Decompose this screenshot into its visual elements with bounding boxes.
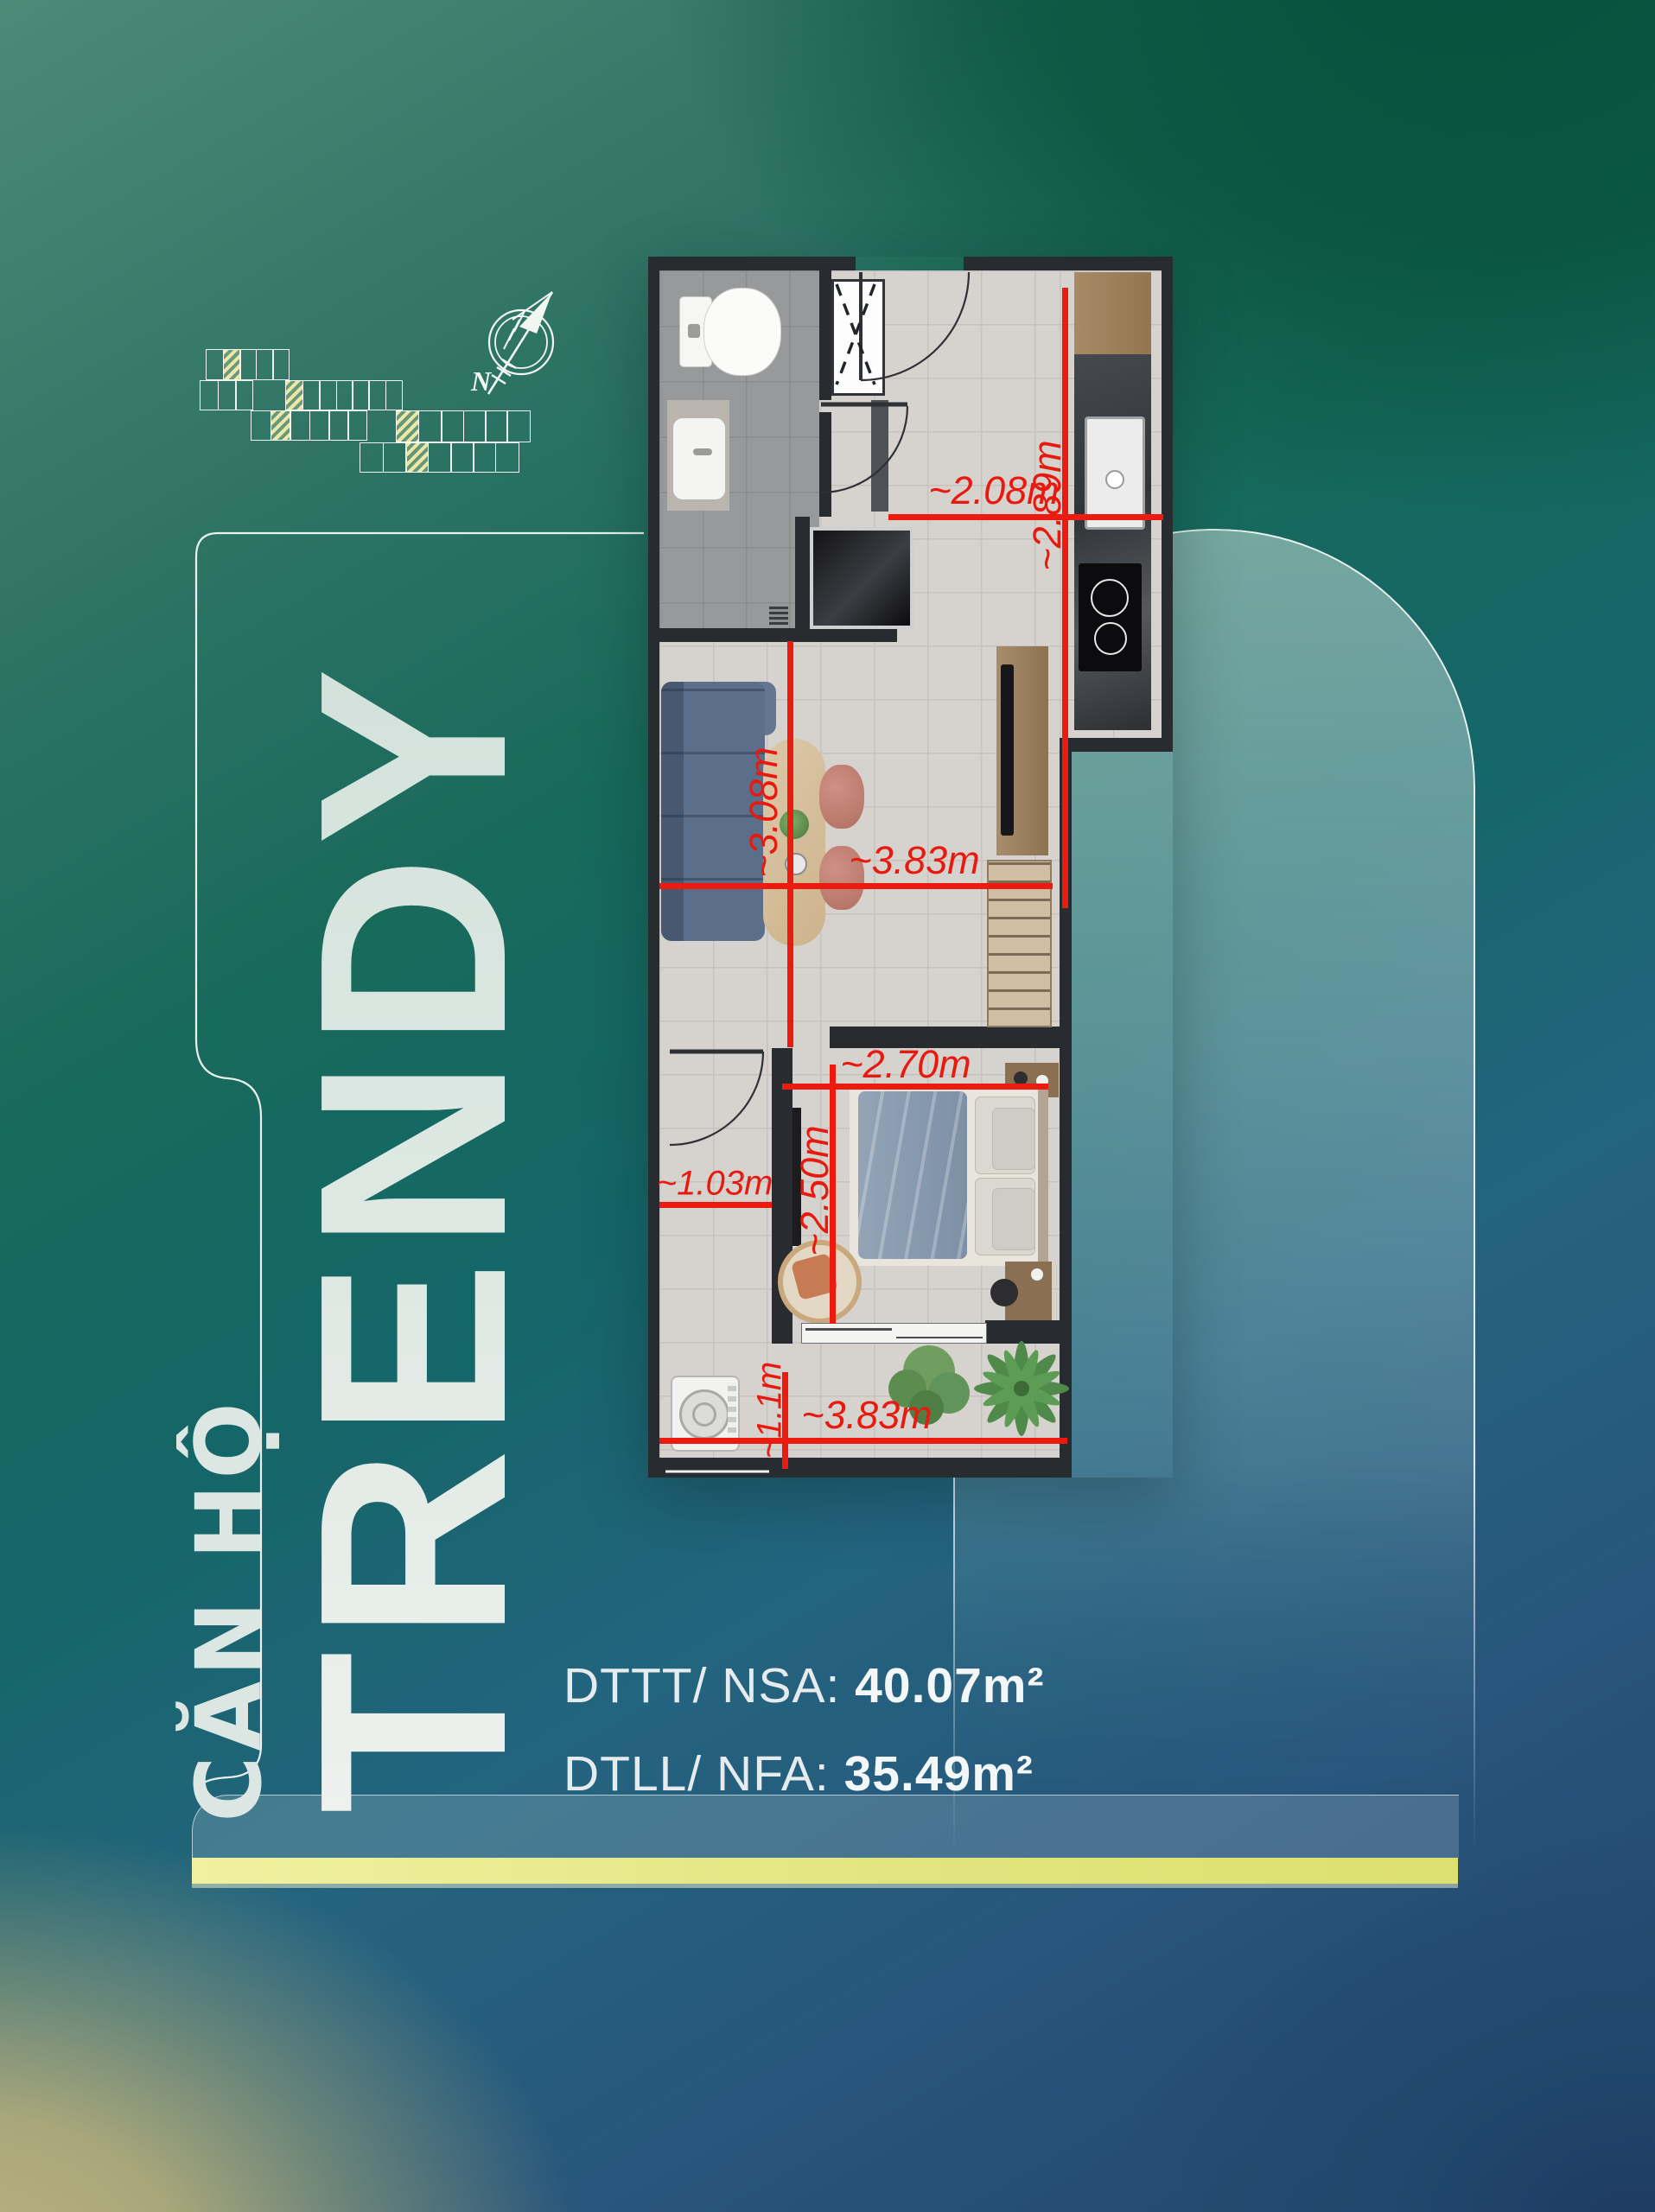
key-plan-unit	[235, 380, 253, 410]
dim-label-entry-width: ~2.08m	[928, 468, 1059, 513]
key-plan-unit-highlighted	[223, 349, 241, 380]
key-plan-unit	[309, 410, 330, 441]
key-plan-unit-highlighted	[271, 410, 291, 441]
key-plan-unit	[319, 380, 337, 410]
key-plan-unit	[347, 410, 367, 441]
dim-label-balcony-width: ~3.83m	[801, 1393, 932, 1438]
key-plan-unit	[463, 410, 487, 442]
key-plan-unit	[495, 442, 519, 473]
key-plan-row	[287, 380, 403, 410]
net-saleable-area-line: DTTT/ NSA: 40.07m²	[563, 1657, 1044, 1714]
poster-canvas: N TRENDY CĂN HỘ DTTT/ NSA: 40.07m² DTLL/…	[0, 0, 1655, 2212]
key-plan-unit	[506, 410, 531, 442]
key-plan-unit	[352, 380, 370, 410]
key-plan-unit	[385, 380, 403, 410]
key-plan-unit	[428, 442, 452, 473]
key-plan-unit	[383, 442, 407, 473]
net-floor-area-line: DTLL/ NFA: 35.49m²	[563, 1745, 1034, 1802]
dim-label-bedroom-length: ~2.50m	[792, 1125, 837, 1255]
dim-label-living-width: ~3.83m	[849, 838, 979, 883]
key-plan-unit	[328, 410, 349, 441]
key-plan-unit	[256, 349, 274, 380]
accent-yellow-bar	[192, 1858, 1458, 1884]
key-plan-row	[201, 380, 253, 410]
dim-line-living-length	[787, 641, 793, 1047]
key-plan-unit	[200, 380, 219, 410]
apartment-name-title: TRENDY	[280, 658, 546, 1814]
nsa-value: 40.07m²	[855, 1658, 1044, 1713]
dim-label-bedroom-width: ~2.70m	[840, 1042, 971, 1087]
dim-label-hallway-width: ~1.03m	[657, 1165, 773, 1204]
key-plan-unit	[302, 380, 321, 410]
compass-n-label: N	[470, 365, 493, 397]
key-plan-unit	[272, 349, 290, 380]
dim-label-living-length: ~3.08m	[742, 747, 786, 877]
dim-line-balcony-width	[659, 1438, 1067, 1444]
key-plan-unit	[450, 442, 474, 473]
dim-label-balcony-depth: ~1.1m	[751, 1362, 790, 1459]
dim-line-living-width	[659, 883, 1053, 889]
key-plan-unit	[218, 380, 237, 410]
key-plan-unit	[290, 410, 310, 441]
key-plan-row	[207, 349, 290, 380]
key-plan-row	[252, 410, 367, 441]
key-plan-unit	[251, 410, 271, 441]
key-plan-unit	[441, 410, 464, 442]
key-plan-unit	[206, 349, 224, 380]
nfa-value: 35.49m²	[844, 1746, 1034, 1802]
key-plan-unit-highlighted	[285, 380, 303, 410]
key-plan-row	[398, 410, 531, 442]
key-plan-unit-highlighted	[396, 410, 419, 442]
key-plan-unit	[485, 410, 508, 442]
key-plan-unit-highlighted	[405, 442, 429, 473]
key-plan-unit	[368, 380, 386, 410]
nsa-label: DTTT/ NSA:	[563, 1658, 840, 1713]
key-plan-unit	[360, 442, 384, 473]
compass-north-icon: N	[469, 275, 573, 409]
key-plan-unit	[239, 349, 257, 380]
key-plan-unit	[336, 380, 353, 410]
key-plan-row	[361, 442, 519, 473]
nfa-label: DTLL/ NFA:	[563, 1746, 830, 1802]
apartment-category-title: CĂN HỘ	[184, 1397, 274, 1822]
dim-line-kitchen-run	[1062, 288, 1068, 908]
key-plan-unit	[473, 442, 496, 473]
key-plan-unit	[418, 410, 442, 442]
